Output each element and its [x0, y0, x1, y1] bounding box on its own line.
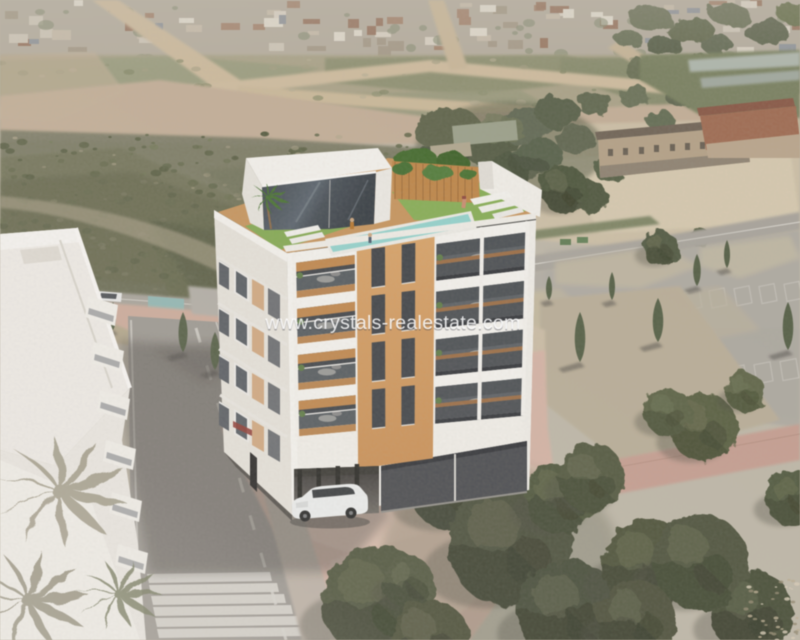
svg-text:www.crystals-realestate.com: www.crystals-realestate.com	[264, 312, 520, 334]
